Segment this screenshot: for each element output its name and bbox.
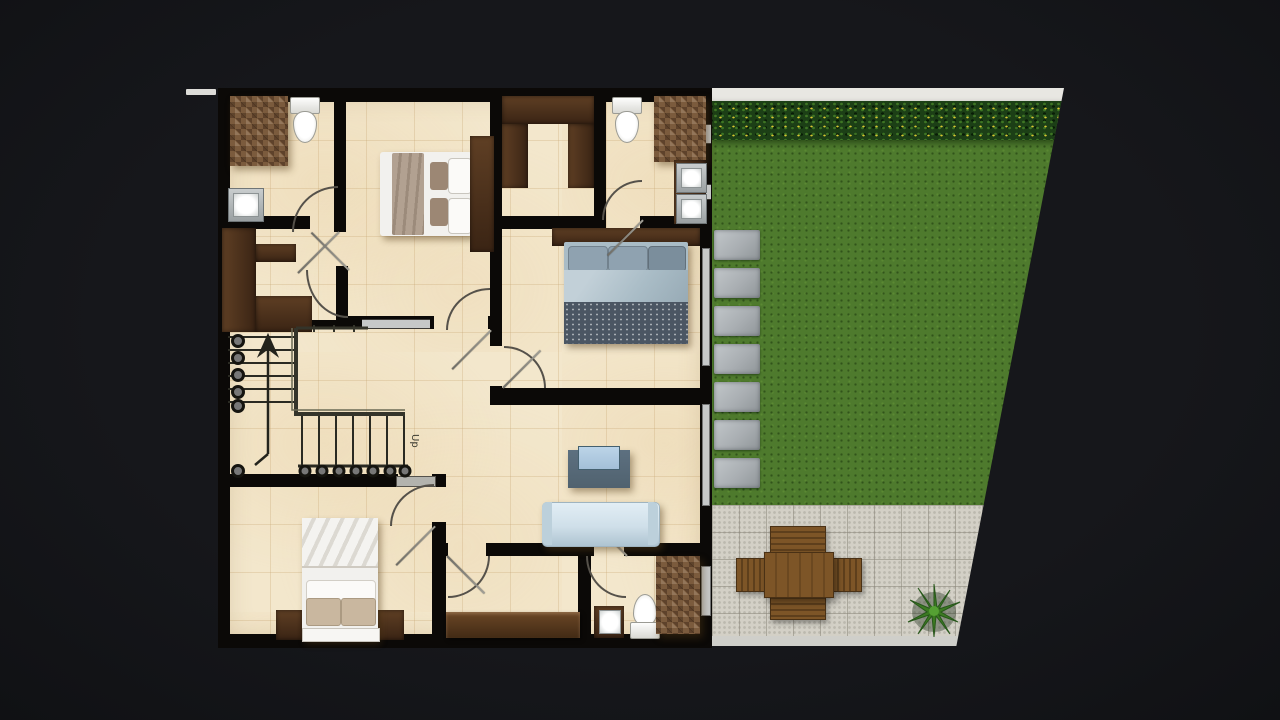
wardrobe-left (502, 124, 528, 188)
stepping-stone (714, 306, 760, 336)
sofa-armrest (542, 502, 552, 545)
stepping-stone (714, 420, 760, 450)
floor-plan-render: Up (0, 0, 1280, 720)
sink-basin (681, 199, 702, 219)
wall (594, 92, 606, 218)
sofa-body (542, 502, 660, 547)
bed-canopy (302, 518, 378, 568)
stepping-stone (714, 230, 760, 260)
wardrobe-top (502, 96, 594, 124)
garden-chair-left (736, 558, 766, 592)
sink-basin (233, 193, 259, 217)
window-strip (702, 248, 710, 366)
garden-chair-right (832, 558, 862, 592)
stepping-stone (714, 268, 760, 298)
bed-pillow-accent (430, 162, 448, 190)
bed-headboard (470, 136, 494, 252)
garden-zone (712, 88, 1064, 648)
potted-plant (906, 582, 962, 638)
wall (432, 522, 446, 648)
wall (490, 388, 712, 405)
shower-tray (230, 96, 288, 166)
vanity-basin (599, 610, 621, 634)
stair-treads-lower (298, 416, 408, 466)
patio-door[interactable] (701, 566, 711, 616)
staircase: Up (222, 322, 422, 482)
stair-railing (292, 325, 405, 414)
bed-pillow-accent (306, 598, 341, 626)
hedge (712, 101, 1064, 140)
lawn (712, 101, 1064, 505)
stepping-stone (714, 458, 760, 488)
stair-up-label: Up (409, 434, 420, 448)
bed-blanket (392, 153, 424, 235)
sofa-armrest (648, 502, 658, 545)
bed-pillow (648, 246, 686, 272)
bed-pillow-accent (430, 198, 448, 226)
door-leaf (446, 555, 485, 594)
sink (676, 194, 707, 224)
stepping-stone (714, 382, 760, 412)
bed-pillow (568, 246, 608, 272)
stair-newels (233, 336, 244, 477)
stair-direction-arrow (255, 336, 276, 465)
door-swing[interactable] (448, 556, 490, 598)
nightstand (276, 610, 302, 640)
tv-screen (578, 446, 620, 470)
bed-throw-woven (564, 302, 688, 344)
wardrobe-slab (222, 228, 256, 332)
boundary-mark (186, 89, 216, 95)
bed-pillow (448, 198, 472, 234)
bed-pillow (448, 158, 472, 194)
dresser (446, 612, 580, 638)
glass-wall (702, 404, 710, 506)
wardrobe-right (568, 124, 594, 188)
nightstand (378, 610, 404, 640)
sink-basin (681, 168, 702, 188)
wall (432, 543, 448, 556)
sink (228, 188, 264, 222)
dining-table (764, 552, 834, 598)
bed-pillow-accent (341, 598, 376, 626)
stepping-stone (714, 344, 760, 374)
sink (676, 163, 707, 193)
bed-headboard (302, 628, 380, 642)
shower-tray (656, 556, 700, 634)
garden-top-wall (712, 88, 1064, 101)
shower-tray (654, 96, 706, 162)
wardrobe-arm (256, 244, 296, 262)
door-swing[interactable] (504, 346, 546, 388)
garden-bench-top (770, 526, 826, 554)
door-leaf (502, 350, 541, 389)
